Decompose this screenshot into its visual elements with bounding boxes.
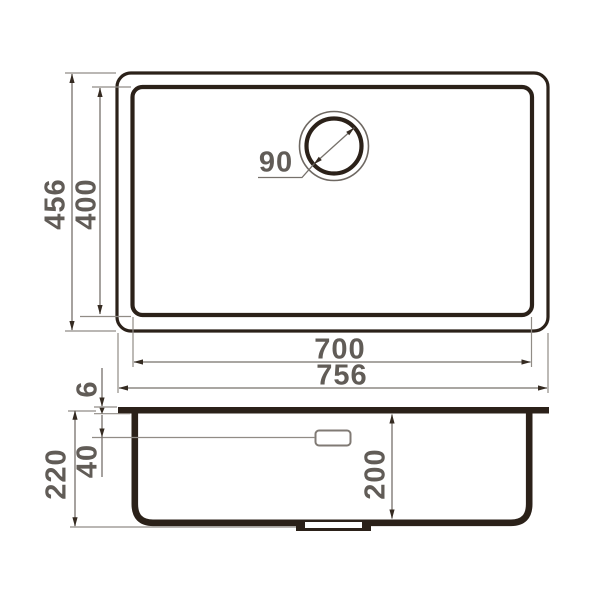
section-view — [68, 368, 549, 531]
dim-400-label: 400 — [73, 178, 102, 229]
dim-220-label: 220 — [43, 448, 72, 499]
drawing-linework — [0, 0, 600, 600]
section-rim-plate — [118, 407, 549, 414]
dim-40-label: 40 — [74, 444, 103, 478]
dim-200-label: 200 — [362, 448, 391, 499]
dim-6-label: 6 — [74, 380, 103, 397]
plan-bowl-outline — [133, 87, 533, 315]
dim-456-label: 456 — [42, 178, 71, 229]
plan-view — [65, 73, 548, 393]
drain-diameter-label: 90 — [259, 149, 293, 178]
sink-technical-drawing: 456 400 90 700 756 6 220 40 200 — [0, 0, 600, 600]
overflow-window — [316, 431, 351, 446]
dim-756-label: 756 — [316, 362, 367, 391]
section-drain-slot — [305, 522, 362, 528]
